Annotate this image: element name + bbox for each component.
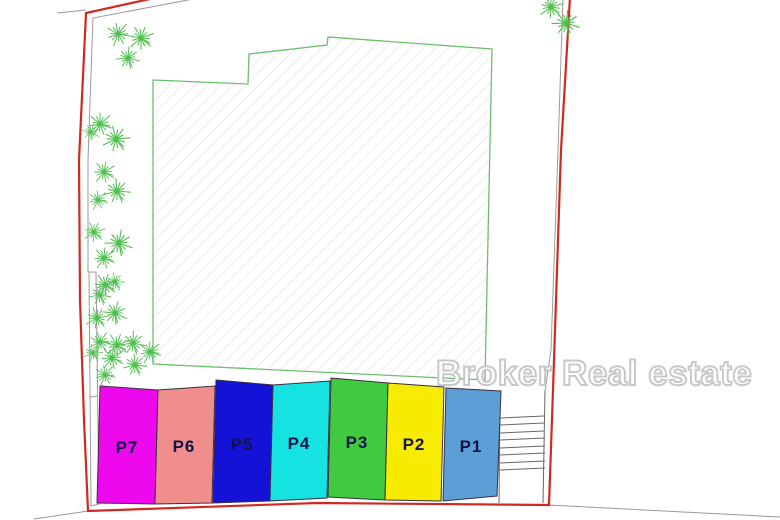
shrub-icon [550, 9, 581, 39]
site-plan-drawing: P7 P6 P5 P4 P3 P2 P1 [0, 0, 780, 520]
building-footprint [153, 37, 492, 380]
shrub-icon [105, 21, 131, 48]
stairs-icon [499, 391, 545, 503]
watermark: Broker Real estate [436, 356, 752, 391]
parking-stall-label-p4: P4 [288, 434, 311, 453]
parking-stall-label-p5: P5 [231, 435, 254, 454]
parking-stall-label-p7: P7 [116, 438, 139, 457]
site-plan-canvas: P7 P6 P5 P4 P3 P2 P1 [0, 0, 780, 520]
shrub-icon [79, 218, 108, 247]
shrub-icon [114, 45, 141, 71]
shrub-icon [102, 301, 127, 326]
parking-stall-label-p1: P1 [460, 437, 483, 456]
ground-line-top-left [57, 10, 86, 13]
shrub-icon [86, 189, 109, 213]
parking-stall-label-p3: P3 [346, 433, 369, 452]
shrub-icon [103, 229, 133, 258]
shrub-icon [89, 158, 119, 188]
parking-row: P7 P6 P5 P4 P3 P2 P1 [97, 378, 501, 504]
parking-stall-label-p6: P6 [173, 437, 196, 456]
parking-stall-label-p2: P2 [403, 435, 426, 454]
ground-line-bottom-right [549, 505, 780, 517]
ground-line-bottom-left [34, 511, 88, 519]
